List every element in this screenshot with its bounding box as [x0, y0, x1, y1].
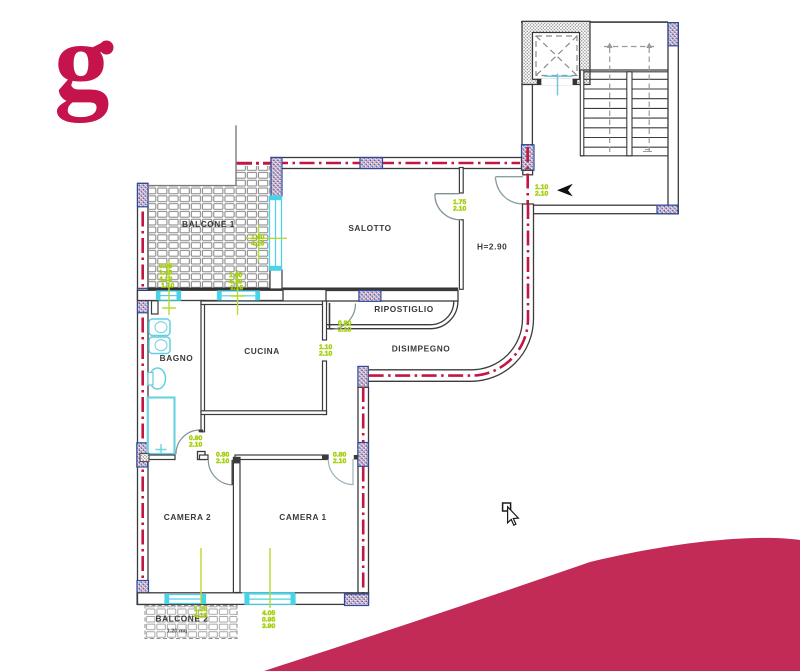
svg-text:1.10: 1.10 [161, 283, 174, 290]
svg-text:2.10: 2.10 [319, 351, 332, 358]
svg-text:4.10: 4.10 [251, 241, 264, 248]
svg-text:2.10: 2.10 [216, 458, 229, 465]
svg-text:BAGNO: BAGNO [160, 353, 194, 363]
svg-text:RIPOSTIGLIO: RIPOSTIGLIO [374, 304, 434, 314]
svg-text:2.10: 2.10 [453, 206, 466, 213]
svg-text:SALOTTO: SALOTTO [348, 223, 391, 233]
svg-text:CAMERA 1: CAMERA 1 [279, 512, 326, 522]
svg-text:2.10: 2.10 [333, 458, 346, 465]
svg-text:4.10: 4.10 [194, 613, 207, 620]
svg-text:g: g [54, 1, 110, 124]
svg-text:2.10: 2.10 [535, 191, 548, 198]
svg-text:1.10: 1.10 [230, 285, 243, 292]
svg-text:DISIMPEGNO: DISIMPEGNO [392, 344, 451, 354]
svg-text:2.10: 2.10 [189, 442, 202, 449]
svg-text:CAMERA 2: CAMERA 2 [164, 512, 211, 522]
svg-text:2.10: 2.10 [338, 327, 351, 334]
svg-text:H=2.90: H=2.90 [477, 242, 507, 252]
svg-text:3.90: 3.90 [262, 623, 275, 630]
svg-text:BALCONE 1: BALCONE 1 [182, 219, 235, 229]
svg-text:CUCINA: CUCINA [244, 346, 280, 356]
svg-text:1.20 mq: 1.20 mq [167, 629, 187, 635]
